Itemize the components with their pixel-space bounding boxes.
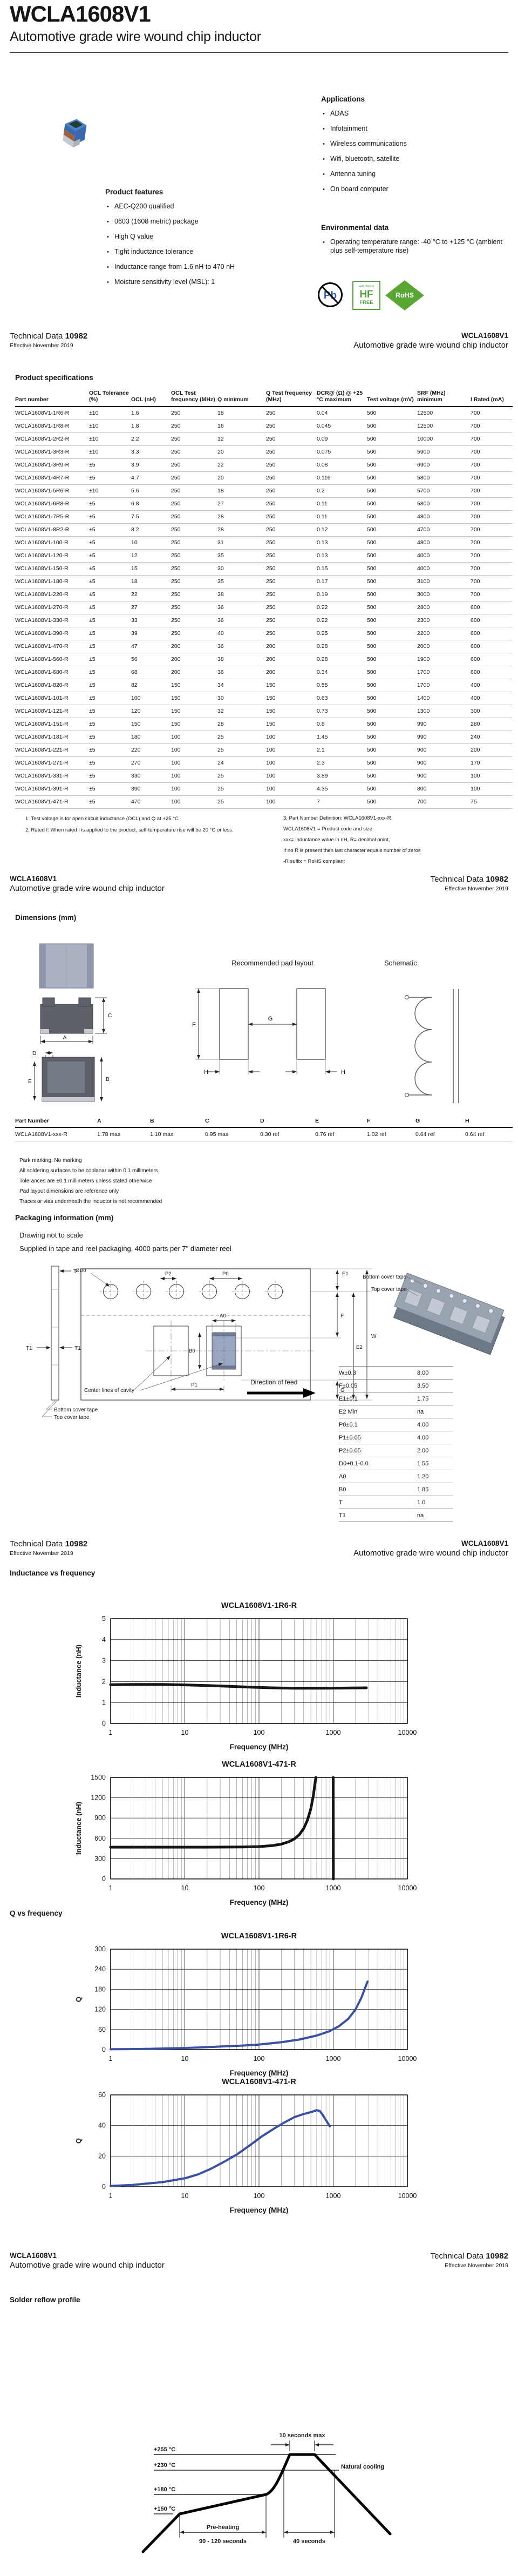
- halogen-free-icon: HALOGEN HF FREE: [352, 281, 380, 310]
- cell: 22: [131, 588, 171, 601]
- cell: 100: [131, 692, 171, 705]
- cell: WCLA1608V1-271-R: [15, 756, 89, 769]
- svg-text:Frequency (MHz): Frequency (MHz): [230, 1898, 289, 1906]
- svg-text:1000: 1000: [326, 2192, 341, 2200]
- table-row: WCLA1608V1-820-R±582150341500.5550017004…: [15, 679, 513, 692]
- cell: 250: [266, 575, 317, 588]
- list-item: •Antenna tuning: [323, 168, 501, 184]
- cell: 500: [367, 627, 417, 640]
- svg-text:T1: T1: [26, 1346, 32, 1351]
- cell: 250: [266, 601, 317, 614]
- cell: WCLA1608V1-1R8-R: [15, 420, 89, 432]
- table-row: WCLA1608V1-121-R±5120150321500.735001300…: [15, 705, 513, 718]
- cell: 100: [171, 756, 217, 769]
- cell: 0.8: [317, 718, 367, 731]
- dim-col-header: C: [205, 1118, 260, 1127]
- pkg-dim-label: T1: [339, 1512, 417, 1519]
- cell: 15: [131, 562, 171, 575]
- cell: 1.10 max: [150, 1127, 205, 1141]
- cell: 10000: [417, 432, 471, 445]
- cell: 250: [171, 549, 217, 562]
- cell: 150: [171, 679, 217, 692]
- svg-text:Inductance (nH): Inductance (nH): [74, 1802, 83, 1855]
- cell: 25: [217, 795, 266, 808]
- svg-text:1: 1: [109, 2192, 113, 2200]
- svg-text:10 seconds max: 10 seconds max: [280, 2432, 326, 2439]
- cell: ±5: [89, 653, 131, 666]
- list-item-text: Wifi, bluetooth, satellite: [330, 154, 400, 163]
- pkg-dim-value: 1.20: [417, 1473, 428, 1480]
- svg-text:10: 10: [181, 1729, 189, 1736]
- svg-text:0: 0: [102, 2183, 106, 2190]
- table-row: E2 Minna: [339, 1405, 453, 1418]
- cell: 36: [217, 614, 266, 627]
- cell: 1300: [417, 705, 471, 718]
- cell: 28: [217, 718, 266, 731]
- spec-table: Part numberOCL Tolerance (%)OCL (nH)OCL …: [15, 390, 513, 809]
- svg-text:+255 °C: +255 °C: [154, 2446, 175, 2453]
- cell: 250: [171, 510, 217, 523]
- cell: 280: [471, 718, 513, 731]
- cell: 300: [471, 705, 513, 718]
- cell: 3.9: [131, 458, 171, 471]
- pkg-dim-label: P0±0.1: [339, 1422, 417, 1428]
- spec-col-header: DCR@ (Ω) @ +25 °C maximum: [317, 390, 367, 407]
- cell: 5900: [417, 445, 471, 458]
- svg-text:H: H: [341, 1069, 345, 1076]
- note-line: 2. Rated I: When rated I is applied to t…: [25, 824, 268, 836]
- cell: 500: [367, 679, 417, 692]
- cell: 4700: [417, 523, 471, 536]
- cell: ±5: [89, 536, 131, 549]
- list-item: •Wifi, bluetooth, satellite: [323, 153, 501, 168]
- cell: 0.2: [317, 484, 367, 497]
- cell: ±10: [89, 420, 131, 432]
- cell: ±5: [89, 575, 131, 588]
- cell: ±5: [89, 692, 131, 705]
- cell: WCLA1608V1-820-R: [15, 679, 89, 692]
- note-line: WCLA1608V1 = Product code and size: [283, 824, 505, 835]
- cell: 500: [367, 666, 417, 679]
- cell: WCLA1608V1-4R7-R: [15, 471, 89, 484]
- cell: 700: [471, 484, 513, 497]
- cell: 39: [131, 627, 171, 640]
- cell: 7: [317, 795, 367, 808]
- product-block: WCLA1608V1 Automotive grade wire wound c…: [10, 875, 165, 893]
- cell: ±5: [89, 769, 131, 782]
- cell: 250: [171, 601, 217, 614]
- cell: WCLA1608V1-121-R: [15, 705, 89, 718]
- cell: WCLA1608V1-221-R: [15, 743, 89, 756]
- cell: 500: [367, 705, 417, 718]
- cell: 250: [266, 407, 317, 420]
- list-item: •On board computer: [323, 184, 501, 199]
- pkg-dim-value: 1.0: [417, 1499, 425, 1506]
- cell: 500: [367, 484, 417, 497]
- cell: 18: [217, 407, 266, 420]
- page-band: WCLA1608V1 Automotive grade wire wound c…: [10, 875, 508, 893]
- table-row: D0+0.1-0.01.55: [339, 1457, 453, 1470]
- cell: 100: [266, 731, 317, 743]
- svg-text:100: 100: [254, 2192, 265, 2200]
- svg-text:10: 10: [181, 2055, 189, 2063]
- table-row: WCLA1608V1-101-R±5100150301500.635001400…: [15, 692, 513, 705]
- cell: 0.15: [317, 562, 367, 575]
- cell: ±10: [89, 484, 131, 497]
- cell: ±5: [89, 562, 131, 575]
- svg-text:B0: B0: [189, 1348, 195, 1354]
- cell: 500: [367, 510, 417, 523]
- page-band: Technical Data 10982 Effective November …: [10, 332, 508, 350]
- cell: 250: [266, 614, 317, 627]
- svg-text:0: 0: [102, 1875, 106, 1883]
- environmental-heading: Environmental data: [321, 224, 388, 232]
- pkg-dim-label: P2±0.05: [339, 1448, 417, 1454]
- table-row: WCLA1608V1-7R5-R±57.5250282500.115004800…: [15, 510, 513, 523]
- cell: 240: [471, 731, 513, 743]
- list-item: •Infotainment: [323, 123, 501, 138]
- cell: 400: [471, 692, 513, 705]
- svg-text:E: E: [28, 1079, 32, 1085]
- cell: 28: [217, 523, 266, 536]
- svg-text:Natural cooling: Natural cooling: [341, 2464, 384, 2470]
- cell: 400: [471, 679, 513, 692]
- list-item-text: Wireless communications: [330, 139, 407, 148]
- cell: 2.3: [317, 756, 367, 769]
- cell: 500: [367, 588, 417, 601]
- q-section-heading: Q vs frequency: [10, 1909, 63, 1917]
- svg-text:180: 180: [94, 1985, 106, 1993]
- table-row: P2±0.052.00: [339, 1444, 453, 1457]
- cell: 20: [217, 471, 266, 484]
- cell: 0.075: [317, 445, 367, 458]
- dim-col-header: H: [465, 1118, 513, 1127]
- cell: 100: [266, 743, 317, 756]
- cell: ±5: [89, 782, 131, 795]
- svg-text:P2: P2: [165, 1271, 172, 1277]
- cell: 100: [171, 795, 217, 808]
- cell: 0.25: [317, 627, 367, 640]
- cell: 250: [266, 458, 317, 471]
- cell: 250: [266, 420, 317, 432]
- list-item: •0603 (1608 metric) package: [107, 216, 293, 231]
- technical-data-block: Technical Data 10982 Effective November …: [431, 2252, 508, 2269]
- list-item: •AEC-Q200 qualified: [107, 201, 293, 216]
- table-row: WCLA1608V1-560-R±556200382000.2850019006…: [15, 653, 513, 666]
- table-row: WCLA1608V1-221-R±5220100251002.150090020…: [15, 743, 513, 756]
- cell: WCLA1608V1-8R2-R: [15, 523, 89, 536]
- cell: WCLA1608V1-331-R: [15, 769, 89, 782]
- svg-text:P1: P1: [191, 1382, 197, 1388]
- svg-text:P0: P0: [222, 1271, 229, 1277]
- list-item: •Moisture sensitivity level (MSL): 1: [107, 276, 293, 292]
- title-divider: [10, 52, 508, 53]
- features-list: •AEC-Q200 qualified•0603 (1608 metric) p…: [107, 201, 293, 292]
- cell: 0.22: [317, 601, 367, 614]
- svg-text:600: 600: [94, 1835, 106, 1842]
- svg-text:Top cover tape: Top cover tape: [54, 1415, 90, 1419]
- cell: 500: [367, 445, 417, 458]
- cell: 12: [217, 432, 266, 445]
- cell: 12500: [417, 420, 471, 432]
- svg-text:90 - 120 seconds: 90 - 120 seconds: [199, 2538, 247, 2545]
- cell: 250: [266, 588, 317, 601]
- cell: ±5: [89, 627, 131, 640]
- table-row: WCLA1608V1-3R9-R±53.9250222500.085006900…: [15, 458, 513, 471]
- technical-data-label: Technical Data: [10, 332, 63, 341]
- cell: 200: [266, 640, 317, 653]
- cell: 2.1: [317, 743, 367, 756]
- pkg-dim-value: 3.50: [417, 1383, 428, 1389]
- table-row: B01.85: [339, 1483, 453, 1496]
- cell: 0.95 max: [205, 1127, 260, 1141]
- cell: 500: [367, 653, 417, 666]
- table-row: WCLA1608V1-331-R±5330100251003.895009001…: [15, 769, 513, 782]
- table-row: WCLA1608V1-391-R±5390100251004.355008001…: [15, 782, 513, 795]
- cell: 1400: [417, 692, 471, 705]
- cell: 0.76 ref: [315, 1127, 367, 1141]
- cell: 1700: [417, 666, 471, 679]
- cell: 0.63: [317, 692, 367, 705]
- cell: WCLA1608V1-390-R: [15, 627, 89, 640]
- cell: 4800: [417, 510, 471, 523]
- cell: 8.2: [131, 523, 171, 536]
- spec-col-header: I Rated (mA): [471, 390, 513, 407]
- cell: 600: [471, 640, 513, 653]
- table-row: WCLA1608V1-471-R±547010025100750070075: [15, 795, 513, 808]
- cell: 150: [171, 692, 217, 705]
- bullet-icon: •: [323, 170, 330, 179]
- page-title: WCLA1608V1: [10, 1, 151, 27]
- svg-text:WCLA1608V1-1R6-R: WCLA1608V1-1R6-R: [221, 1601, 297, 1610]
- product-block: WCLA1608V1 Automotive grade wire wound c…: [353, 1539, 508, 1558]
- list-item: •Inductance range from 1.6 nH to 470 nH: [107, 261, 293, 276]
- reflow-diagram-svg: +255 °C+230 °C+180 °C+150 °C10 seconds m…: [140, 2423, 421, 2573]
- cell: 270: [131, 756, 171, 769]
- svg-text:60: 60: [98, 2026, 106, 2033]
- cell: 6.8: [131, 497, 171, 510]
- cell: 700: [471, 575, 513, 588]
- bullet-icon: •: [323, 109, 330, 118]
- bullet-icon: •: [323, 238, 330, 247]
- product-block: WCLA1608V1 Automotive grade wire wound c…: [10, 2252, 165, 2270]
- table-row: WCLA1608V1-4R7-R±54.7250202500.116500580…: [15, 471, 513, 484]
- cell: 100: [471, 769, 513, 782]
- cell: 900: [417, 743, 471, 756]
- svg-text:+230 °C: +230 °C: [154, 2462, 175, 2469]
- bullet-icon: •: [323, 154, 330, 164]
- cell: 250: [171, 523, 217, 536]
- cell: 200: [171, 666, 217, 679]
- cell: 4800: [417, 536, 471, 549]
- cell: 100: [266, 782, 317, 795]
- table-row: WCLA1608V1-100-R±510250312500.1350048007…: [15, 536, 513, 549]
- packaging-note-scale: Drawing not to scale: [19, 1231, 83, 1239]
- table-row: WCLA1608V1-2R2-R±102.2250122500.09500100…: [15, 432, 513, 445]
- cell: 150: [171, 718, 217, 731]
- cell: 990: [417, 718, 471, 731]
- cell: ±5: [89, 614, 131, 627]
- cell: 36: [217, 666, 266, 679]
- list-item: •ADAS: [323, 108, 501, 123]
- svg-text:1200: 1200: [91, 1794, 106, 1802]
- cell: 7.5: [131, 510, 171, 523]
- reflow-heading: Solder reflow profile: [10, 2296, 80, 2304]
- cell: 200: [171, 640, 217, 653]
- chart-inductance-471: WCLA1608V1-471-R030060090012001500110100…: [49, 1753, 451, 1925]
- rohs-icon: RoHS: [384, 279, 425, 314]
- cell: 100: [266, 756, 317, 769]
- cell: 0.116: [317, 471, 367, 484]
- cell: 100: [266, 769, 317, 782]
- cell: WCLA1608V1-6R8-R: [15, 497, 89, 510]
- page-band: Technical Data 10982 Effective November …: [10, 1539, 508, 1558]
- svg-text:Q: Q: [74, 1997, 83, 2002]
- list-item-text: Infotainment: [330, 124, 367, 133]
- list-item: •Wireless communications: [323, 138, 501, 153]
- cell: 68: [131, 666, 171, 679]
- svg-text:3: 3: [102, 1657, 106, 1665]
- cell: 27: [217, 497, 266, 510]
- cell: ±5: [89, 497, 131, 510]
- pkg-dim-value: 1.75: [417, 1396, 428, 1402]
- svg-text:Bottom cover tape: Bottom cover tape: [54, 1407, 98, 1413]
- footnotes-left: 1. Test voltage is for open circuit indu…: [25, 813, 268, 836]
- cell: 500: [367, 432, 417, 445]
- svg-text:0: 0: [102, 2046, 106, 2053]
- cell: 0.64 ref: [465, 1127, 513, 1141]
- cell: 150: [266, 679, 317, 692]
- cell: 18: [217, 484, 266, 497]
- bullet-icon: •: [107, 278, 114, 287]
- cell: 200: [171, 653, 217, 666]
- bullet-icon: •: [107, 232, 114, 241]
- cell: 33: [131, 614, 171, 627]
- spec-col-header: Q minimum: [217, 390, 266, 407]
- table-row: WCLA1608V1-1R6-R±101.6250182500.04500125…: [15, 407, 513, 420]
- technical-data-block: Technical Data 10982 Effective November …: [10, 1539, 87, 1557]
- cell: 4.35: [317, 782, 367, 795]
- svg-text:40: 40: [98, 2122, 106, 2129]
- packaging-heading: Packaging information (mm): [15, 1214, 113, 1222]
- technical-data-block: Technical Data 10982 Effective November …: [431, 875, 508, 892]
- note-line: Pad layout dimensions are reference only: [19, 1186, 322, 1196]
- cell: 25: [217, 731, 266, 743]
- cell: 32: [217, 705, 266, 718]
- cell: WCLA1608V1-391-R: [15, 782, 89, 795]
- cell: 700: [471, 432, 513, 445]
- cell: 500: [367, 458, 417, 471]
- cell: 3.3: [131, 445, 171, 458]
- cell: 12500: [417, 407, 471, 420]
- table-row: A01.20: [339, 1470, 453, 1483]
- pkg-dim-label: D0+0.1-0.0: [339, 1461, 417, 1467]
- svg-text:Frequency (MHz): Frequency (MHz): [230, 2206, 289, 2214]
- cell: 700: [417, 795, 471, 808]
- dimensions-heading: Dimensions (mm): [15, 914, 76, 922]
- svg-text:Q: Q: [74, 2138, 83, 2144]
- svg-text:H: H: [204, 1069, 208, 1076]
- table-row: WCLA1608V1-680-R±568200362000.3450017006…: [15, 666, 513, 679]
- cell: 250: [266, 471, 317, 484]
- table-row: WCLA1608V1-470-R±547200362000.2850020006…: [15, 640, 513, 653]
- cell: 0.09: [317, 432, 367, 445]
- spec-col-header: OCL Test frequency (MHz): [171, 390, 217, 407]
- cell: 600: [471, 666, 513, 679]
- svg-text:1000: 1000: [326, 1884, 341, 1892]
- cell: 150: [266, 705, 317, 718]
- cell: 5800: [417, 471, 471, 484]
- pkg-dim-label: F±0.05: [339, 1383, 417, 1389]
- table-row: WCLA1608V1-8R2-R±58.2250282500.125004700…: [15, 523, 513, 536]
- cell: 0.28: [317, 640, 367, 653]
- table-row: WCLA1608V1-1R8-R±101.8250162500.04550012…: [15, 420, 513, 432]
- cell: 100: [171, 743, 217, 756]
- technical-data-block: Technical Data 10982 Effective November …: [10, 332, 87, 349]
- dimension-drawings-svg: CADEBFGHH: [22, 939, 507, 1113]
- cell: 500: [367, 692, 417, 705]
- cell: ±10: [89, 432, 131, 445]
- cell: 24: [217, 756, 266, 769]
- svg-text:10000: 10000: [398, 1729, 417, 1736]
- spec-col-header: Test voltage (mV): [367, 390, 417, 407]
- cell: 700: [471, 536, 513, 549]
- cell: 38: [217, 588, 266, 601]
- cell: 2200: [417, 627, 471, 640]
- note-line: xxx= inductance value in nH, R= decimal …: [283, 835, 505, 846]
- svg-text:F: F: [340, 1313, 344, 1319]
- cell: 600: [471, 653, 513, 666]
- table-row: WCLA1608V1-120-R±512250352500.1350040007…: [15, 549, 513, 562]
- cell: 990: [417, 731, 471, 743]
- cell: 250: [266, 497, 317, 510]
- spec-col-header: SRF (MHz) minimum: [417, 390, 471, 407]
- cell: 250: [171, 458, 217, 471]
- spec-col-header: OCL Tolerance (%): [89, 390, 131, 407]
- svg-text:C: C: [108, 1013, 112, 1019]
- spec-col-header: Part number: [15, 390, 89, 407]
- cell: 700: [471, 420, 513, 432]
- svg-text:B: B: [106, 1077, 110, 1083]
- bullet-icon: •: [107, 262, 114, 272]
- svg-text:10: 10: [181, 1884, 189, 1892]
- svg-text:1: 1: [109, 2055, 113, 2063]
- pb-free-icon: Pb: [317, 280, 344, 312]
- cell: 1.8: [131, 420, 171, 432]
- cell: ±5: [89, 718, 131, 731]
- cell: 250: [266, 549, 317, 562]
- cell: 250: [266, 523, 317, 536]
- svg-text:WCLA1608V1-471-R: WCLA1608V1-471-R: [222, 1760, 296, 1769]
- cell: 250: [266, 445, 317, 458]
- cell: 100: [266, 795, 317, 808]
- specs-table-wrap: Part numberOCL Tolerance (%)OCL (nH)OCL …: [15, 390, 513, 809]
- cell: WCLA1608V1-1R6-R: [15, 407, 89, 420]
- list-item-text: Inductance range from 1.6 nH to 470 nH: [114, 262, 235, 271]
- applications-heading: Applications: [321, 95, 365, 103]
- svg-text:100: 100: [254, 2055, 265, 2063]
- cell: 200: [471, 743, 513, 756]
- note-line: If no R is present then last character e…: [283, 846, 505, 856]
- cell: 250: [171, 562, 217, 575]
- cell: 250: [171, 536, 217, 549]
- cell: ±5: [89, 601, 131, 614]
- cell: WCLA1608V1-3R3-R: [15, 445, 89, 458]
- svg-text:120: 120: [94, 2006, 106, 2013]
- product-photo: [59, 114, 88, 156]
- svg-text:40 seconds: 40 seconds: [293, 2538, 325, 2545]
- cell: 200: [266, 653, 317, 666]
